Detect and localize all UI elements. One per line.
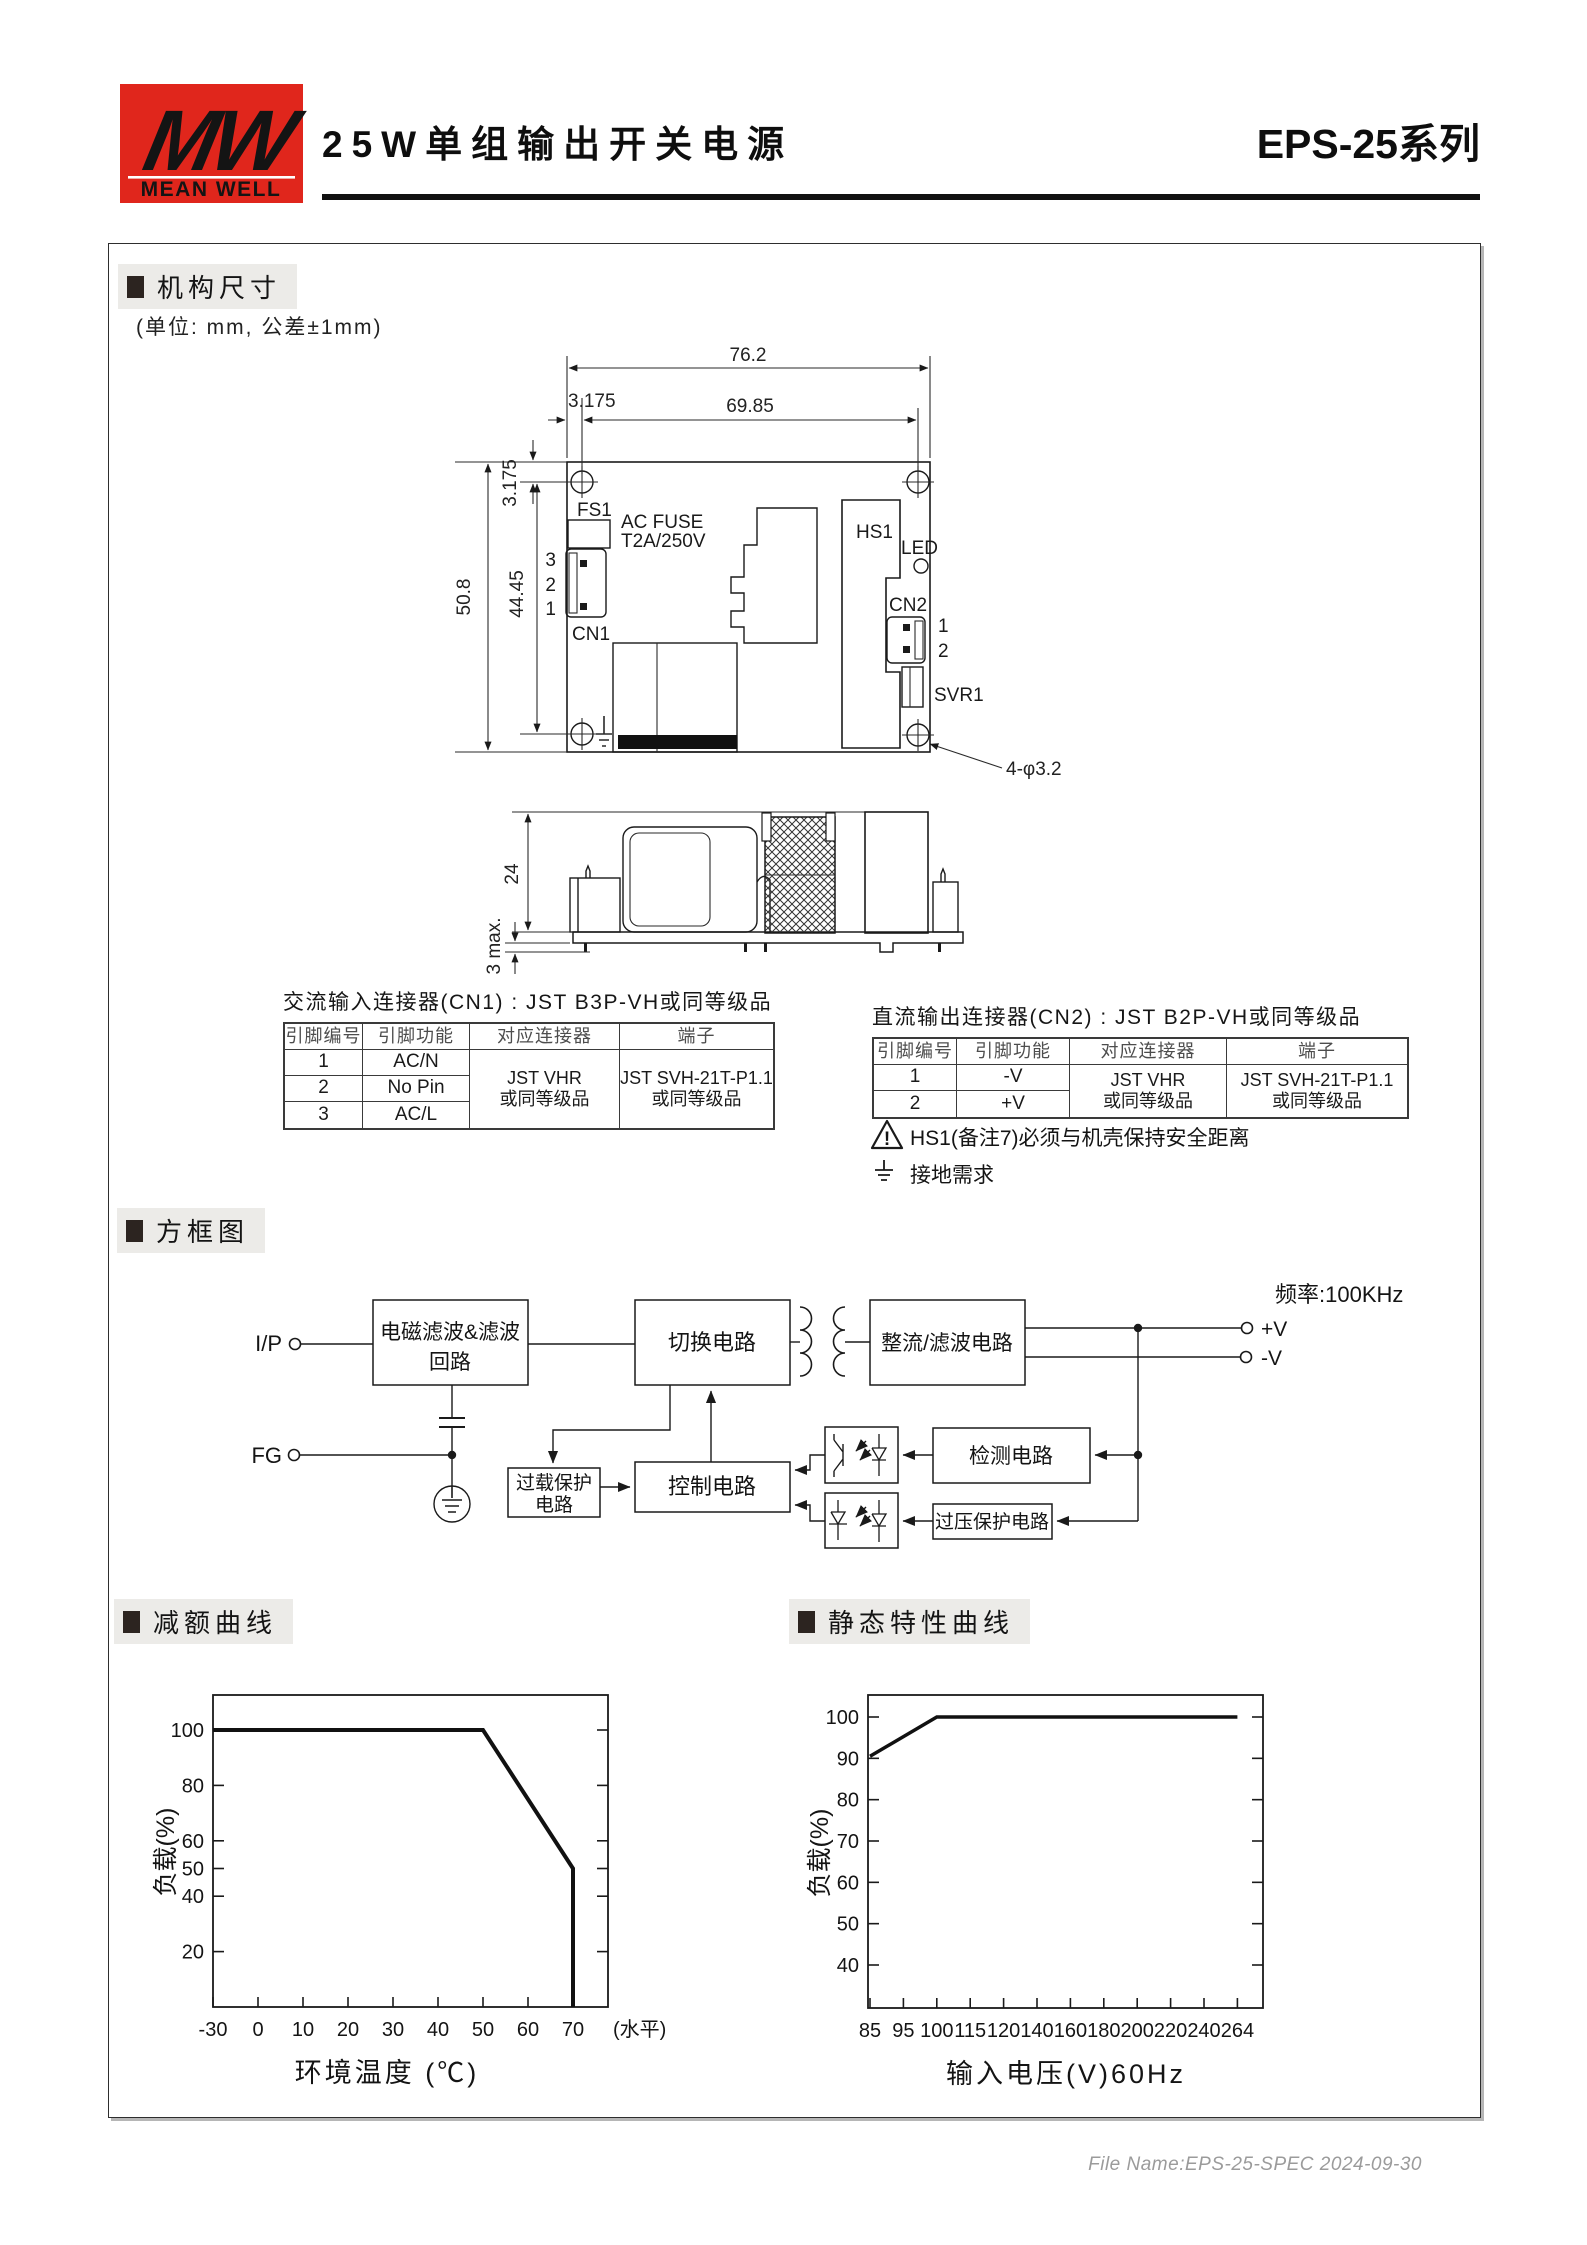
section-square-icon: [798, 1611, 815, 1633]
x-tick-label: 220: [1154, 2020, 1187, 2042]
col-header: 引脚功能: [957, 1039, 1070, 1065]
side-dimensions: [505, 814, 590, 974]
cn1-label: CN1: [572, 624, 610, 645]
col-header: 端子: [1227, 1039, 1407, 1065]
pv-label: +V: [1261, 1318, 1287, 1341]
charts: -30010203040506070(水平)2040506080100环境温度 …: [140, 1670, 1480, 2100]
led-label: LED: [901, 538, 938, 559]
cell-func: AC/N: [363, 1050, 470, 1076]
logo-brand-text: MEAN WELL: [141, 178, 282, 201]
cell-pin: 1: [874, 1065, 957, 1091]
ground-icon: [875, 1160, 893, 1180]
plot-border: [868, 1695, 1263, 2008]
earth-symbol-icon: [596, 716, 612, 746]
y-tick-label: 80: [837, 1790, 859, 1812]
cn2-pin2-label: 2: [938, 641, 949, 662]
cn1-pin1-label: 1: [545, 599, 556, 620]
y-tick-label: 60: [837, 1872, 859, 1894]
fuse-rating-label: T2A/250V: [621, 531, 706, 552]
cn2-grid: 引脚编号 引脚功能 对应连接器 端子 1 -V 2 +V JST VHR 或同等…: [872, 1037, 1409, 1119]
x-tick-label: 264: [1221, 2020, 1254, 2042]
unit-note: (单位: mm, 公差±1mm): [136, 311, 383, 341]
cell-pin: 3: [285, 1102, 363, 1128]
cn2-table: 直流输出连接器(CN2) : JST B2P-VH或同等级品 引脚编号 引脚功能…: [872, 1001, 1409, 1119]
terminal-line2: 或同等级品: [1272, 1091, 1362, 1112]
top-view: FS1 AC FUSE T2A/250V 3 2 1 CN1: [454, 345, 1062, 780]
cn1-pin2-label: 2: [545, 575, 556, 596]
cn1-pin3-label: 3: [545, 550, 556, 571]
x-tick-label: 30: [382, 2019, 404, 2041]
ip-terminal: [290, 1339, 301, 1350]
overload-label-2: 电路: [535, 1494, 573, 1516]
terminal-line1: JST SVH-21T-P1.1: [1241, 1070, 1394, 1091]
x-tick-label: 40: [427, 2019, 449, 2041]
frequency-label: 频率:100KHz: [1275, 1282, 1403, 1307]
x-tick-label: 180: [1087, 2020, 1120, 2042]
y-tick-label: 40: [182, 1886, 204, 1908]
cell-func: +V: [957, 1091, 1070, 1117]
y-tick-label: 80: [182, 1775, 204, 1797]
fuse-outline: [568, 520, 610, 548]
series-name: EPS-25系列: [1257, 110, 1480, 170]
y-tick-label: 50: [837, 1914, 859, 1936]
cell-func: -V: [957, 1065, 1070, 1091]
section-block-diagram: 方框图: [117, 1208, 265, 1253]
chart-0: -30010203040506070(水平)2040506080100环境温度 …: [152, 1695, 666, 2088]
terminal-line1: JST SVH-21T-P1.1: [620, 1068, 773, 1089]
dim-69-85: 69.85: [726, 396, 774, 417]
x-tick-label: 60: [517, 2019, 539, 2041]
transformer-outline: [731, 508, 817, 643]
x-axis-label: 输入电压(V)60Hz: [946, 2059, 1186, 2089]
y-tick-label: 100: [171, 1720, 204, 1742]
warning-text: HS1(备注7)必须与机壳保持安全距离: [910, 1127, 1250, 1150]
terminal-line2: 或同等级品: [652, 1089, 742, 1110]
detection-label: 检测电路: [969, 1445, 1053, 1468]
nv-terminal: [1241, 1352, 1252, 1363]
dim-3-max: 3 max.: [484, 917, 505, 974]
overload-label-1: 过载保护: [516, 1472, 592, 1494]
x-tick-label: 160: [1054, 2020, 1087, 2042]
dimension-lines: [455, 356, 930, 752]
y-axis-label: 负载(%): [152, 1808, 180, 1897]
x-tick-label: -30: [199, 2019, 228, 2041]
cell-connector: JST VHR 或同等级品: [470, 1050, 620, 1128]
dim-24: 24: [502, 863, 523, 885]
x-tick-label: 85: [859, 2020, 881, 2042]
x-tick-label: 95: [892, 2020, 914, 2042]
hs1-label: HS1: [856, 522, 893, 543]
datasheet-page: MW MEAN WELL 25W单组输出开关电源 EPS-25系列 机构尺寸 (…: [0, 0, 1587, 2245]
pv-terminal: [1242, 1323, 1253, 1334]
ip-label: I/P: [255, 1331, 282, 1356]
connector-line1: JST VHR: [507, 1068, 582, 1089]
optocoupler1-box: [825, 1427, 898, 1483]
y-tick-label: 60: [182, 1831, 204, 1853]
hole-note-label: 4-φ3.2: [1006, 759, 1062, 780]
col-header: 端子: [620, 1024, 773, 1050]
col-header: 引脚编号: [285, 1024, 363, 1050]
pcb-outline: [567, 462, 930, 752]
dim-3-175-top: 3.175: [568, 391, 616, 412]
capacitor-side: [623, 827, 770, 932]
ac-fuse-label: AC FUSE: [621, 512, 703, 533]
led-circle: [914, 559, 928, 573]
notes: ! HS1(备注7)必须与机壳保持安全距离 接地需求: [865, 1115, 1305, 1195]
x-tick-label: 115: [954, 2020, 986, 2042]
switching-label: 切换电路: [668, 1330, 756, 1355]
fg-label: FG: [251, 1443, 282, 1468]
cn2-pin1-label: 1: [938, 616, 949, 637]
transformer-side: [762, 813, 835, 933]
meanwell-logo: MW MEAN WELL: [120, 84, 303, 203]
solder-pins: [584, 943, 941, 952]
svr1-label: SVR1: [934, 685, 984, 706]
connector-line1: JST VHR: [1111, 1070, 1186, 1091]
cell-func: No Pin: [363, 1076, 470, 1102]
cell-connector: JST VHR 或同等级品: [1070, 1065, 1227, 1117]
cell-terminal: JST SVH-21T-P1.1 或同等级品: [620, 1050, 773, 1128]
mechanical-drawing: FS1 AC FUSE T2A/250V 3 2 1 CN1: [430, 330, 1130, 990]
control-label: 控制电路: [668, 1474, 756, 1499]
section-static-label: 静态特性曲线: [828, 1603, 1014, 1640]
emi-label-1: 电磁滤波&滤波: [380, 1321, 520, 1344]
section-block-label: 方框图: [156, 1212, 249, 1249]
cn2-connector: [887, 617, 925, 663]
rectifier-label: 整流/滤波电路: [881, 1332, 1013, 1355]
col-header: 引脚功能: [363, 1024, 470, 1050]
cn1-grid: 引脚编号 引脚功能 对应连接器 端子 1 AC/N 2 No Pin 3 AC/…: [283, 1022, 775, 1130]
x-axis-label: 环境温度 (℃): [295, 2058, 479, 2088]
connector-line2: 或同等级品: [500, 1089, 590, 1110]
y-tick-label: 20: [182, 1942, 204, 1964]
connector-line2: 或同等级品: [1103, 1091, 1193, 1112]
emi-label-2: 回路: [429, 1351, 471, 1374]
data-line: [213, 1730, 573, 2007]
x-tick-label: 200: [1121, 2020, 1154, 2042]
dim-3-175-left: 3.175: [500, 459, 521, 507]
fg-terminal: [289, 1450, 300, 1461]
section-mechanical-label: 机构尺寸: [157, 268, 281, 305]
title-rule: [322, 194, 1480, 200]
ovp-label: 过压保护电路: [935, 1511, 1049, 1533]
chart-1: 8595100115120140160180200220240264405060…: [806, 1695, 1263, 2089]
warning-exclamation: !: [884, 1129, 890, 1150]
nv-label: -V: [1261, 1347, 1282, 1370]
x-tick-label: 70: [562, 2019, 584, 2041]
svr1-component: [902, 667, 923, 707]
footer-filename: File Name:EPS-25-SPEC 2024-09-30: [800, 2154, 1422, 2176]
x-tick-label: 120: [987, 2020, 1020, 2042]
y-tick-label: 100: [826, 1707, 859, 1729]
cn1-table-title: 交流输入连接器(CN1) : JST B3P-VH或同等级品: [283, 986, 775, 1016]
block-diagram: I/P FG 电磁滤波&滤波 回路 切换电路 整流/滤波电路 过载保护 电路 控…: [150, 1260, 1480, 1580]
x-tick-label: 10: [292, 2019, 314, 2041]
x-tick-label: 240: [1187, 2020, 1220, 2042]
x-tick-label: 140: [1020, 2020, 1053, 2042]
section-static-curve: 静态特性曲线: [789, 1599, 1030, 1644]
dim-50-8: 50.8: [454, 579, 475, 616]
col-header: 引脚编号: [874, 1039, 957, 1065]
dim-76-2: 76.2: [730, 345, 767, 366]
cell-func: AC/L: [363, 1102, 470, 1128]
mounting-holes: [566, 466, 934, 751]
x-axis-suffix: (水平): [613, 2018, 666, 2041]
section-square-icon: [127, 276, 144, 298]
fs1-label: FS1: [577, 500, 612, 521]
bottom-component: [613, 643, 737, 752]
cell-pin: 2: [874, 1091, 957, 1117]
section-square-icon: [123, 1611, 140, 1633]
x-tick-label: 50: [472, 2019, 494, 2041]
data-line: [870, 1717, 1237, 1756]
black-bar: [618, 735, 737, 749]
x-tick-label: 0: [252, 2019, 263, 2041]
y-tick-label: 50: [182, 1859, 204, 1881]
section-mechanical: 机构尺寸: [118, 264, 297, 309]
plot-border: [213, 1695, 608, 2007]
cn1-table: 交流输入连接器(CN1) : JST B3P-VH或同等级品 引脚编号 引脚功能…: [283, 986, 775, 1130]
x-tick-label: 20: [337, 2019, 359, 2041]
cn2-label: CN2: [889, 595, 927, 616]
side-connector-left: [570, 866, 620, 932]
side-view: 24 3 max.: [484, 812, 963, 975]
section-square-icon: [126, 1220, 143, 1242]
y-tick-label: 90: [837, 1748, 859, 1770]
dim-44-45: 44.45: [507, 570, 528, 618]
col-header: 对应连接器: [470, 1024, 620, 1050]
cn2-table-title: 直流输出连接器(CN2) : JST B2P-VH或同等级品: [872, 1001, 1409, 1031]
y-tick-label: 40: [837, 1955, 859, 1977]
optocoupler2-icon: [829, 1500, 886, 1542]
section-derating: 减额曲线: [114, 1599, 293, 1644]
y-axis-label: 负载(%): [806, 1809, 834, 1898]
pcb-side: [573, 932, 963, 952]
heatsink-side: [865, 812, 928, 933]
y-tick-label: 70: [837, 1831, 859, 1853]
cell-pin: 1: [285, 1050, 363, 1076]
cell-pin: 2: [285, 1076, 363, 1102]
warning-triangle-icon: !: [872, 1121, 902, 1150]
optocoupler1-icon: [834, 1434, 886, 1477]
side-connector-right: [933, 869, 958, 932]
x-tick-label: 100: [920, 2020, 953, 2042]
page-title: 25W单组输出开关电源: [322, 114, 793, 168]
ground-text: 接地需求: [910, 1164, 994, 1187]
col-header: 对应连接器: [1070, 1039, 1227, 1065]
cell-terminal: JST SVH-21T-P1.1 或同等级品: [1227, 1065, 1407, 1117]
cn1-connector: [566, 549, 606, 617]
section-derating-label: 减额曲线: [153, 1603, 277, 1640]
hole-leader-line: [930, 744, 1002, 768]
